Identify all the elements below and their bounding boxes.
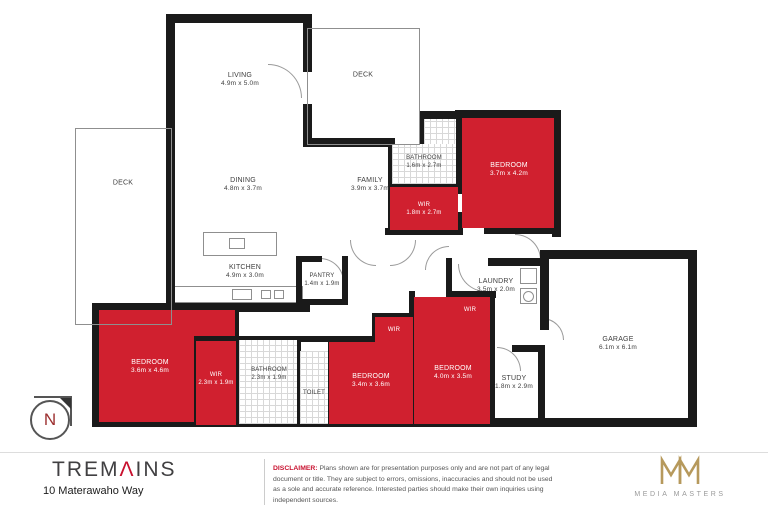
room-label-study: STUDY1.8m x 2.9m [495,374,533,392]
laundry-appliance [520,288,537,304]
room-label-bedroom-upper: BEDROOM3.7m x 4.2m [490,161,528,179]
room-label-toilet: TOILET [303,389,325,397]
room-label-bedroom-mid: BEDROOM3.4m x 3.6m [352,372,390,390]
bathroom-upper-nook-floor [424,119,456,146]
wall [538,345,545,425]
door-arc [515,234,541,260]
deck-left-outline [75,128,172,325]
floor-plan: LIVING4.9m x 5.0m DECK DECK DINING4.8m x… [0,0,768,452]
room-label-pantry: PANTRY1.4m x 1.9m [304,272,339,288]
wall [166,14,312,23]
north-compass: N [28,398,74,444]
room-label-laundry: LAUNDRY3.5m x 2.0m [477,277,515,295]
room-label-deck-top: DECK [353,70,373,79]
footer-divider [264,459,265,505]
toilet-floor [300,351,328,424]
wall [342,256,348,305]
media-masters-label: MEDIA MASTERS [615,491,745,498]
kitchen-island [203,232,277,256]
room-label-wir-left: WIR2.3m x 1.9m [198,371,233,387]
room-label-kitchen: KITCHEN4.9m x 3.0m [226,263,264,281]
wall [296,299,348,305]
wall [296,256,322,262]
wall [540,418,697,427]
deck-top-outline [307,28,420,145]
wall [540,250,697,259]
brand-text: TREM [52,458,120,481]
room-label-wir-right: WIR [464,306,476,314]
wall [488,258,545,266]
footer: TREMΛINS 10 Materawaho Way DISCLAIMER: P… [0,452,768,513]
room-label-living: LIVING4.9m x 5.0m [221,71,259,89]
room-label-wir-mid: WIR [388,326,400,334]
property-address: 10 Materawaho Way [43,485,143,497]
room-label-bathroom-upper: BATHROOM1.6m x 2.7m [406,154,442,170]
room-label-wir-upper: WIR1.8m x 2.7m [406,201,441,217]
brand-red-a: Λ [120,458,136,481]
wall [296,256,302,305]
wall [688,250,697,427]
bedroom-right-floor [414,297,490,424]
room-label-dining: DINING4.8m x 3.7m [224,176,262,194]
room-label-garage: GARAGE6.1m x 6.1m [599,335,637,353]
north-letter: N [30,400,70,440]
wall [419,111,459,119]
room-label-family: FAMILY3.9m x 3.7m [351,176,389,194]
door-arc [350,240,376,266]
room-label-bathroom-lower: BATHROOM2.3m x 1.9m [251,366,287,382]
media-masters-logo: MEDIA MASTERS [615,455,745,498]
room-label-bedroom-left: BEDROOM3.6m x 4.6m [131,358,169,376]
brand-text: INS [136,458,177,481]
tremains-logo: TREMΛINS [52,458,177,482]
disclaimer-title: DISCLAIMER: [273,465,318,472]
room-label-deck-left: DECK [113,178,133,187]
wall [512,345,545,352]
door-arc [390,240,416,266]
door-arc [268,64,302,98]
room-label-bedroom-right: BEDROOM4.0m x 3.5m [434,364,472,382]
kitchen-counter [168,286,303,303]
laundry-appliance [520,268,537,284]
disclaimer: DISCLAIMER: Plans shown are for presenta… [273,464,561,506]
crown-icon [657,455,703,485]
